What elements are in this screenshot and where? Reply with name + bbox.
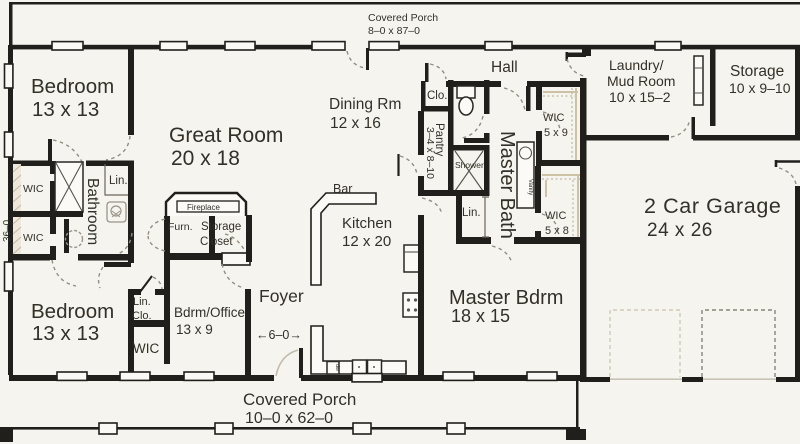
svg-text:Covered Porch: Covered Porch bbox=[368, 12, 438, 24]
svg-text:Kitchen: Kitchen bbox=[342, 215, 392, 232]
svg-text:12 x 16: 12 x 16 bbox=[330, 115, 381, 132]
svg-text:Mud Room: Mud Room bbox=[607, 73, 675, 89]
svg-text:Lin.: Lin. bbox=[462, 207, 481, 219]
svg-text:12 x 20: 12 x 20 bbox=[342, 233, 391, 250]
svg-text:3–4 x 8–10: 3–4 x 8–10 bbox=[424, 127, 436, 179]
svg-text:20 x 18: 20 x 18 bbox=[171, 147, 240, 170]
svg-text:5 x 8: 5 x 8 bbox=[545, 225, 569, 237]
svg-text:Bar: Bar bbox=[333, 182, 352, 196]
svg-text:WIC: WIC bbox=[543, 112, 564, 124]
svg-text:Great Room: Great Room bbox=[169, 124, 283, 147]
svg-text:Furn.: Furn. bbox=[168, 221, 193, 233]
svg-text:Clo.: Clo. bbox=[427, 90, 447, 102]
svg-text:Foyer: Foyer bbox=[259, 286, 304, 306]
svg-text:Bedroom: Bedroom bbox=[31, 75, 114, 98]
svg-text:18 x 15: 18 x 15 bbox=[451, 306, 510, 326]
svg-text:Storage: Storage bbox=[730, 63, 784, 80]
svg-text:Lin.: Lin. bbox=[133, 296, 151, 308]
svg-text:WIC: WIC bbox=[23, 183, 44, 195]
svg-text:Clo.: Clo. bbox=[132, 310, 152, 322]
svg-text:36–0: 36–0 bbox=[2, 219, 13, 242]
svg-text:Vanity: Vanity bbox=[527, 179, 533, 195]
svg-text:WIC: WIC bbox=[133, 341, 159, 356]
svg-text:2 Car Garage: 2 Car Garage bbox=[644, 194, 781, 218]
svg-text:Covered Porch: Covered Porch bbox=[243, 390, 356, 409]
svg-text:Bdrm/Office: Bdrm/Office bbox=[174, 305, 245, 320]
svg-text:Shower: Shower bbox=[455, 160, 484, 170]
svg-text:Laundry/: Laundry/ bbox=[609, 57, 664, 73]
svg-text:dw: dw bbox=[334, 364, 340, 371]
svg-text:Bedroom: Bedroom bbox=[31, 300, 114, 323]
svg-text:Closet: Closet bbox=[200, 236, 233, 248]
svg-text:WIC: WIC bbox=[545, 210, 566, 222]
svg-text:Bathroom: Bathroom bbox=[84, 178, 101, 245]
svg-text:Fireplace: Fireplace bbox=[187, 203, 220, 212]
svg-text:←6–0→: ←6–0→ bbox=[256, 328, 302, 342]
svg-text:Dining Rm: Dining Rm bbox=[329, 96, 401, 113]
svg-text:Master Bath: Master Bath bbox=[496, 131, 518, 239]
svg-text:24 x 26: 24 x 26 bbox=[647, 220, 713, 241]
svg-text:13 x 9: 13 x 9 bbox=[176, 322, 213, 337]
svg-text:WIC: WIC bbox=[23, 232, 44, 244]
svg-text:Storage: Storage bbox=[201, 221, 241, 233]
svg-text:13 x 13: 13 x 13 bbox=[32, 322, 99, 345]
svg-text:Lin.: Lin. bbox=[109, 175, 128, 187]
svg-text:5 x 9: 5 x 9 bbox=[544, 127, 568, 139]
svg-text:10–0 x 62–0: 10–0 x 62–0 bbox=[245, 410, 333, 427]
svg-text:8–0 x 87–0: 8–0 x 87–0 bbox=[368, 25, 420, 37]
svg-text:10 x 15–2: 10 x 15–2 bbox=[609, 89, 671, 105]
svg-text:10 x 9–10: 10 x 9–10 bbox=[729, 80, 791, 96]
svg-text:Hall: Hall bbox=[491, 59, 518, 76]
svg-text:13 x 13: 13 x 13 bbox=[32, 98, 99, 121]
